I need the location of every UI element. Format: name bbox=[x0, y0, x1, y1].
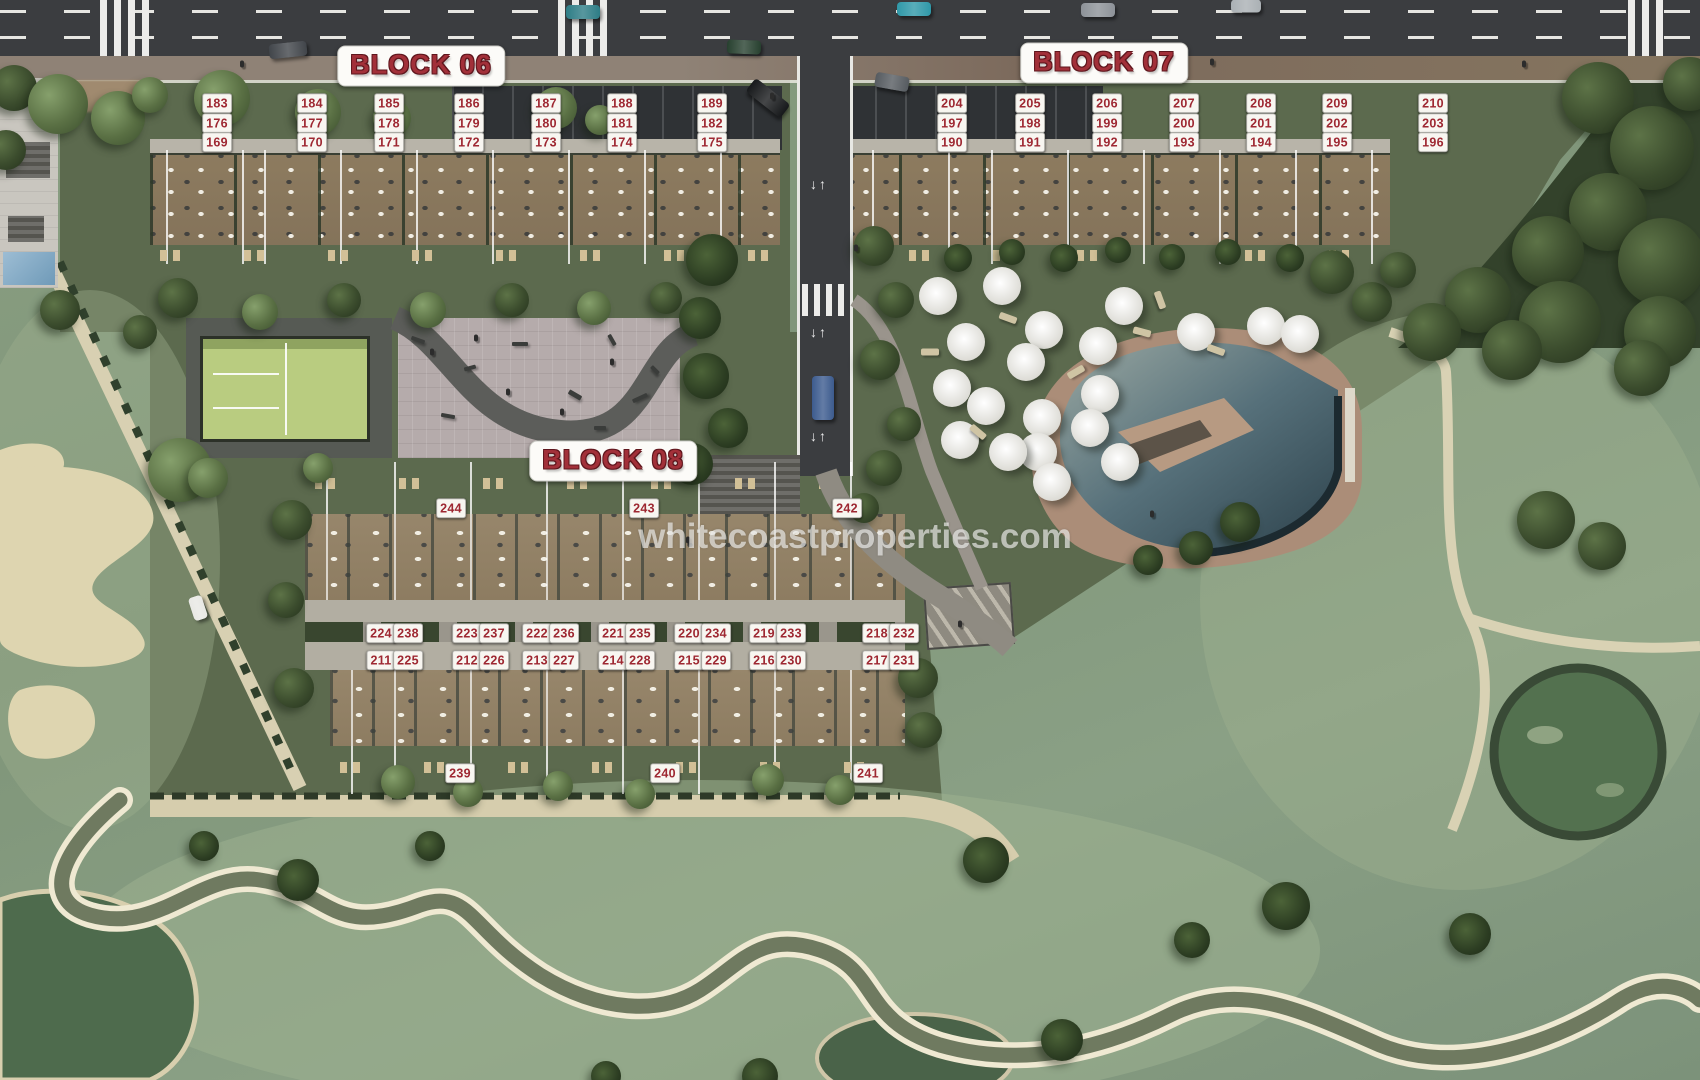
unit-marker-229[interactable]: 229 bbox=[701, 650, 731, 670]
unit-marker-198[interactable]: 198 bbox=[1015, 113, 1045, 133]
unit-marker-183[interactable]: 183 bbox=[202, 93, 232, 113]
unit-marker-217[interactable]: 217 bbox=[862, 650, 892, 670]
block-label-block-08[interactable]: BLOCK 08 bbox=[529, 441, 697, 482]
unit-marker-234[interactable]: 234 bbox=[701, 623, 731, 643]
unit-marker-233[interactable]: 233 bbox=[776, 623, 806, 643]
unit-marker-173[interactable]: 173 bbox=[531, 132, 561, 152]
unit-marker-244[interactable]: 244 bbox=[436, 498, 466, 518]
unit-marker-191[interactable]: 191 bbox=[1015, 132, 1045, 152]
unit-marker-208[interactable]: 208 bbox=[1246, 93, 1276, 113]
unit-marker-207[interactable]: 207 bbox=[1169, 93, 1199, 113]
unit-marker-232[interactable]: 232 bbox=[889, 623, 919, 643]
unit-marker-225[interactable]: 225 bbox=[393, 650, 423, 670]
unit-marker-243[interactable]: 243 bbox=[629, 498, 659, 518]
unit-marker-196[interactable]: 196 bbox=[1418, 132, 1448, 152]
unit-marker-241[interactable]: 241 bbox=[853, 763, 883, 783]
unit-marker-185[interactable]: 185 bbox=[374, 93, 404, 113]
unit-marker-188[interactable]: 188 bbox=[607, 93, 637, 113]
unit-marker-178[interactable]: 178 bbox=[374, 113, 404, 133]
unit-marker-204[interactable]: 204 bbox=[937, 93, 967, 113]
unit-marker-231[interactable]: 231 bbox=[889, 650, 919, 670]
unit-marker-199[interactable]: 199 bbox=[1092, 113, 1122, 133]
unit-marker-186[interactable]: 186 bbox=[454, 93, 484, 113]
unit-marker-238[interactable]: 238 bbox=[393, 623, 423, 643]
unit-marker-216[interactable]: 216 bbox=[749, 650, 779, 670]
unit-marker-170[interactable]: 170 bbox=[297, 132, 327, 152]
unit-marker-176[interactable]: 176 bbox=[202, 113, 232, 133]
unit-marker-195[interactable]: 195 bbox=[1322, 132, 1352, 152]
unit-marker-203[interactable]: 203 bbox=[1418, 113, 1448, 133]
unit-marker-172[interactable]: 172 bbox=[454, 132, 484, 152]
unit-marker-223[interactable]: 223 bbox=[452, 623, 482, 643]
unit-marker-184[interactable]: 184 bbox=[297, 93, 327, 113]
unit-marker-236[interactable]: 236 bbox=[549, 623, 579, 643]
unit-marker-218[interactable]: 218 bbox=[862, 623, 892, 643]
unit-marker-237[interactable]: 237 bbox=[479, 623, 509, 643]
unit-marker-228[interactable]: 228 bbox=[625, 650, 655, 670]
unit-marker-213[interactable]: 213 bbox=[522, 650, 552, 670]
unit-marker-214[interactable]: 214 bbox=[598, 650, 628, 670]
unit-marker-181[interactable]: 181 bbox=[607, 113, 637, 133]
unit-marker-220[interactable]: 220 bbox=[674, 623, 704, 643]
unit-marker-187[interactable]: 187 bbox=[531, 93, 561, 113]
unit-marker-210[interactable]: 210 bbox=[1418, 93, 1448, 113]
unit-marker-230[interactable]: 230 bbox=[776, 650, 806, 670]
unit-marker-201[interactable]: 201 bbox=[1246, 113, 1276, 133]
unit-marker-177[interactable]: 177 bbox=[297, 113, 327, 133]
unit-marker-189[interactable]: 189 bbox=[697, 93, 727, 113]
unit-marker-221[interactable]: 221 bbox=[598, 623, 628, 643]
unit-marker-174[interactable]: 174 bbox=[607, 132, 637, 152]
unit-marker-202[interactable]: 202 bbox=[1322, 113, 1352, 133]
site-plan-canvas: ↓↑ ↓↑ ↓↑ 1831841851861871881891761771781… bbox=[0, 0, 1700, 1080]
unit-marker-171[interactable]: 171 bbox=[374, 132, 404, 152]
unit-marker-193[interactable]: 193 bbox=[1169, 132, 1199, 152]
block-label-block-07[interactable]: BLOCK 07 bbox=[1020, 43, 1188, 84]
unit-marker-215[interactable]: 215 bbox=[674, 650, 704, 670]
unit-marker-242[interactable]: 242 bbox=[832, 498, 862, 518]
unit-marker-192[interactable]: 192 bbox=[1092, 132, 1122, 152]
unit-marker-175[interactable]: 175 bbox=[697, 132, 727, 152]
unit-marker-211[interactable]: 211 bbox=[366, 650, 395, 670]
unit-marker-209[interactable]: 209 bbox=[1322, 93, 1352, 113]
unit-marker-206[interactable]: 206 bbox=[1092, 93, 1122, 113]
unit-marker-240[interactable]: 240 bbox=[650, 763, 680, 783]
unit-marker-224[interactable]: 224 bbox=[366, 623, 396, 643]
unit-marker-222[interactable]: 222 bbox=[522, 623, 552, 643]
unit-marker-194[interactable]: 194 bbox=[1246, 132, 1276, 152]
unit-marker-239[interactable]: 239 bbox=[445, 763, 475, 783]
unit-marker-180[interactable]: 180 bbox=[531, 113, 561, 133]
unit-marker-226[interactable]: 226 bbox=[479, 650, 509, 670]
unit-marker-190[interactable]: 190 bbox=[937, 132, 967, 152]
unit-marker-235[interactable]: 235 bbox=[625, 623, 655, 643]
unit-marker-227[interactable]: 227 bbox=[549, 650, 579, 670]
unit-marker-182[interactable]: 182 bbox=[697, 113, 727, 133]
unit-marker-169[interactable]: 169 bbox=[202, 132, 232, 152]
unit-marker-205[interactable]: 205 bbox=[1015, 93, 1045, 113]
unit-marker-219[interactable]: 219 bbox=[749, 623, 779, 643]
watermark: whitecoastproperties.com bbox=[638, 517, 1072, 557]
block-label-block-06[interactable]: BLOCK 06 bbox=[337, 46, 505, 87]
unit-marker-197[interactable]: 197 bbox=[937, 113, 967, 133]
unit-marker-179[interactable]: 179 bbox=[454, 113, 484, 133]
unit-marker-200[interactable]: 200 bbox=[1169, 113, 1199, 133]
unit-marker-212[interactable]: 212 bbox=[452, 650, 482, 670]
